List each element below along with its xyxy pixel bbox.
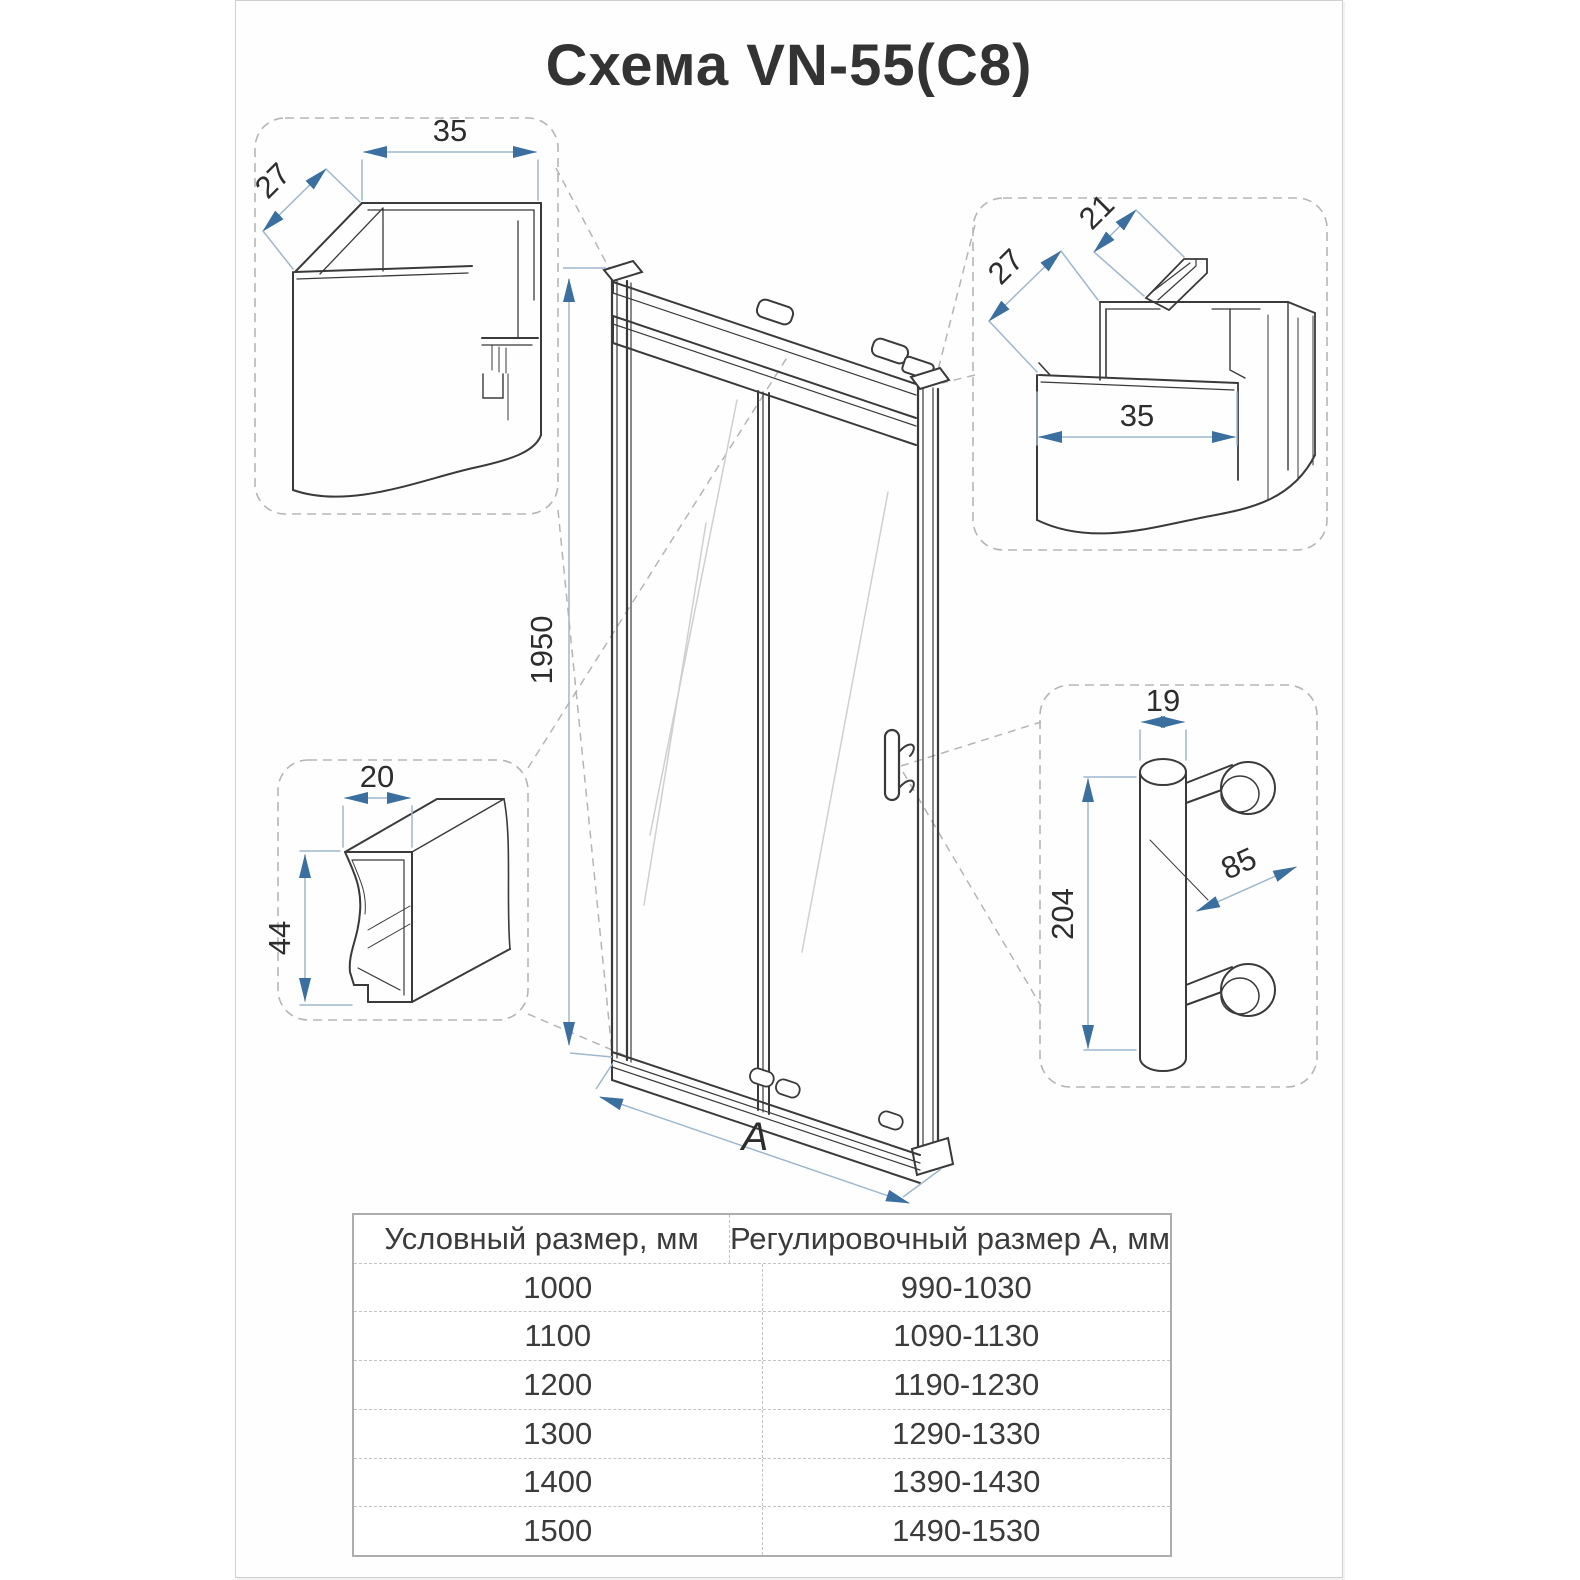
size-table: Условный размер, мм Регулировочный разме… xyxy=(352,1213,1172,1557)
table-row: 1300 1290-1330 xyxy=(354,1409,1170,1458)
schematic-canvas: Схема VN-55(C8) xyxy=(0,0,1580,1580)
cell-adjust-range: 1390-1430 xyxy=(762,1459,1171,1507)
dim-door-width-label: A xyxy=(740,1115,769,1159)
dim-rail-height: 44 xyxy=(262,921,297,955)
callout-handle xyxy=(1040,685,1317,1087)
dim-handle-length: 204 xyxy=(1045,888,1080,940)
door-dimensions: 1950 A xyxy=(524,268,941,1203)
door-drawing xyxy=(604,261,953,1183)
table-header-nominal: Условный размер, мм xyxy=(354,1215,729,1263)
cell-nominal-size: 1000 xyxy=(354,1264,762,1312)
callout-boxes xyxy=(255,118,1327,1087)
left-stile xyxy=(604,261,642,1062)
leader-lines xyxy=(528,168,1041,1062)
table-row: 1000 990-1030 xyxy=(354,1263,1170,1312)
cell-adjust-range: 1090-1130 xyxy=(762,1312,1171,1360)
cell-nominal-size: 1200 xyxy=(354,1361,762,1409)
detail-handle: 19 204 85 xyxy=(1045,683,1296,1071)
dim-wall-right-width: 35 xyxy=(1120,398,1154,433)
table-row: 1400 1390-1430 xyxy=(354,1458,1170,1507)
table-header-adjust: Регулировочный размер А, мм xyxy=(729,1215,1170,1263)
cell-nominal-size: 1100 xyxy=(354,1312,762,1360)
cell-adjust-range: 1490-1530 xyxy=(762,1507,1171,1555)
door-handle xyxy=(885,730,914,800)
detail-wall-profile-left: 35 27 xyxy=(248,113,541,497)
cell-nominal-size: 1400 xyxy=(354,1459,762,1507)
right-stile xyxy=(911,368,953,1175)
dim-wall-right-depth: 27 xyxy=(981,242,1030,291)
bottom-rollers xyxy=(748,1067,905,1132)
dim-handle-offset: 85 xyxy=(1216,840,1262,886)
dim-rail-width: 20 xyxy=(360,759,394,794)
cell-adjust-range: 1290-1330 xyxy=(762,1410,1171,1458)
cell-adjust-range: 990-1030 xyxy=(762,1264,1171,1312)
table-header-row: Условный размер, мм Регулировочный разме… xyxy=(354,1215,1170,1263)
table-row: 1200 1190-1230 xyxy=(354,1360,1170,1409)
cell-nominal-size: 1300 xyxy=(354,1410,762,1458)
table-row: 1500 1490-1530 xyxy=(354,1506,1170,1555)
callout-wall-profile-left xyxy=(255,118,558,514)
centre-mullion xyxy=(758,391,769,1114)
cell-nominal-size: 1500 xyxy=(354,1507,762,1555)
glass-reflections xyxy=(644,400,888,952)
cell-adjust-range: 1190-1230 xyxy=(762,1361,1171,1409)
top-rail xyxy=(613,316,916,445)
table-row: 1100 1090-1130 xyxy=(354,1311,1170,1360)
dim-wall-right-clip: 21 xyxy=(1072,187,1121,236)
detail-rail-profile: 20 44 xyxy=(262,759,510,1005)
detail-wall-profile-right: 21 27 35 xyxy=(981,187,1315,533)
dim-wall-left-width: 35 xyxy=(433,113,467,148)
dim-door-height: 1950 xyxy=(524,616,559,685)
dim-handle-diameter: 19 xyxy=(1146,683,1180,718)
